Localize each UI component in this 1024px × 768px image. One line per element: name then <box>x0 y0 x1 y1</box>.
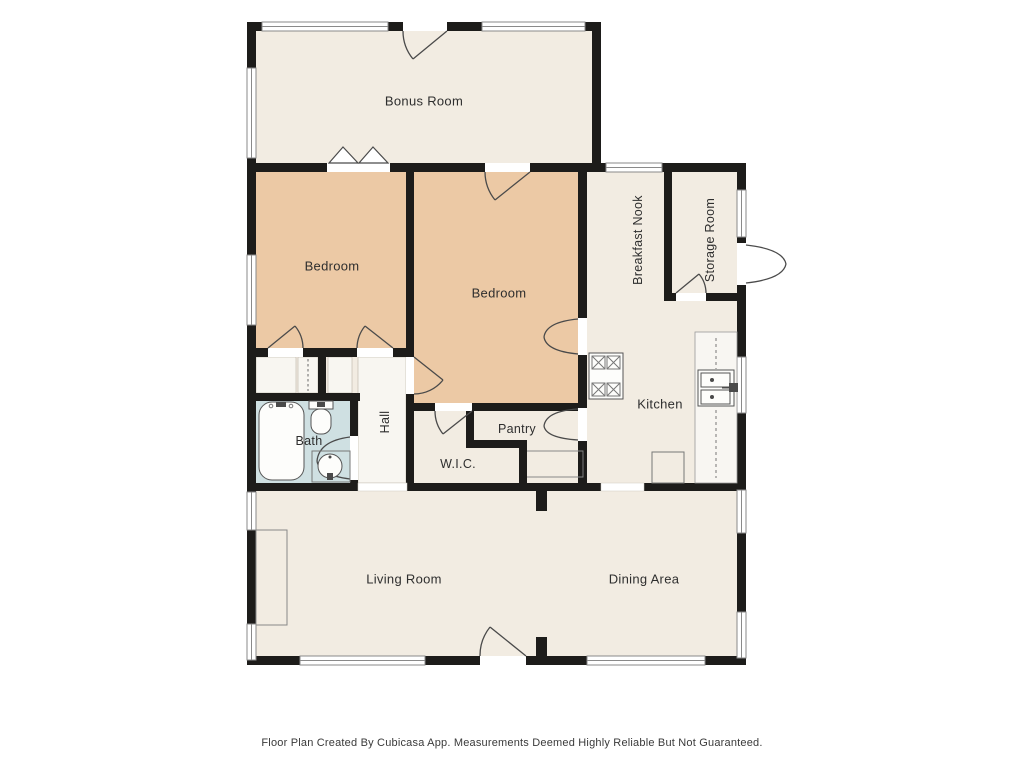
wall-segment <box>407 483 601 491</box>
wall-segment <box>536 637 547 656</box>
room-label-bedroom-left: Bedroom <box>305 259 360 274</box>
wall-segment <box>406 403 587 411</box>
window <box>482 22 585 31</box>
wall-segment <box>406 172 414 491</box>
wall-segment <box>664 163 672 301</box>
floor-plan-drawing <box>0 0 1024 768</box>
stove-icon <box>589 353 623 399</box>
door-opening <box>435 403 472 411</box>
door-opening <box>403 22 447 31</box>
room-label-living-room: Living Room <box>366 572 442 587</box>
kitchen-sink-icon <box>698 370 738 406</box>
door-opening <box>737 243 746 285</box>
window <box>247 255 256 325</box>
door-opening <box>327 163 390 172</box>
wall-segment <box>536 483 547 511</box>
door-opening <box>480 656 526 665</box>
room-label-pantry: Pantry <box>498 422 536 436</box>
door-swing-storage-exterior <box>746 245 786 283</box>
window <box>737 357 746 413</box>
wall-segment <box>247 483 358 491</box>
window <box>262 22 388 31</box>
toilet-icon <box>309 401 333 434</box>
wall-segment <box>466 440 527 448</box>
door-opening <box>578 408 587 441</box>
linen-closet <box>328 357 352 393</box>
closet-left <box>256 357 296 393</box>
room-label-bath: Bath <box>296 434 323 448</box>
kitchen-counter <box>695 332 737 483</box>
window <box>300 656 425 665</box>
door-opening <box>268 348 303 357</box>
room-label-hall: Hall <box>378 411 392 434</box>
passage-opening <box>601 483 644 491</box>
room-label-wic: W.I.C. <box>440 457 476 471</box>
window <box>587 656 705 665</box>
room-label-breakfast-nook: Breakfast Nook <box>631 195 645 285</box>
window <box>737 490 746 533</box>
window <box>737 612 746 658</box>
window <box>737 190 746 237</box>
door-opening <box>406 357 414 394</box>
room-label-storage-room: Storage Room <box>703 198 717 282</box>
door-opening <box>578 318 587 355</box>
door-opening <box>350 436 358 480</box>
floor-plan: Bonus Room Bedroom Bedroom Breakfast Noo… <box>0 0 1024 768</box>
room-label-bedroom-main: Bedroom <box>472 286 527 301</box>
door-opening <box>357 348 393 357</box>
window <box>247 492 256 530</box>
wall-segment <box>737 163 746 665</box>
door-opening <box>485 163 530 172</box>
window <box>247 68 256 158</box>
wall-segment <box>592 22 601 172</box>
window <box>247 624 256 660</box>
room-floors <box>251 26 742 661</box>
door-opening <box>676 293 706 301</box>
wall-segment <box>644 483 746 491</box>
passage-opening <box>358 483 407 491</box>
disclaimer-text: Floor Plan Created By Cubicasa App. Meas… <box>261 737 762 749</box>
room-label-bonus-room: Bonus Room <box>385 94 463 109</box>
room-label-dining-area: Dining Area <box>609 572 680 587</box>
wall-segment <box>247 393 360 401</box>
window <box>606 163 662 172</box>
room-label-kitchen: Kitchen <box>637 397 682 412</box>
